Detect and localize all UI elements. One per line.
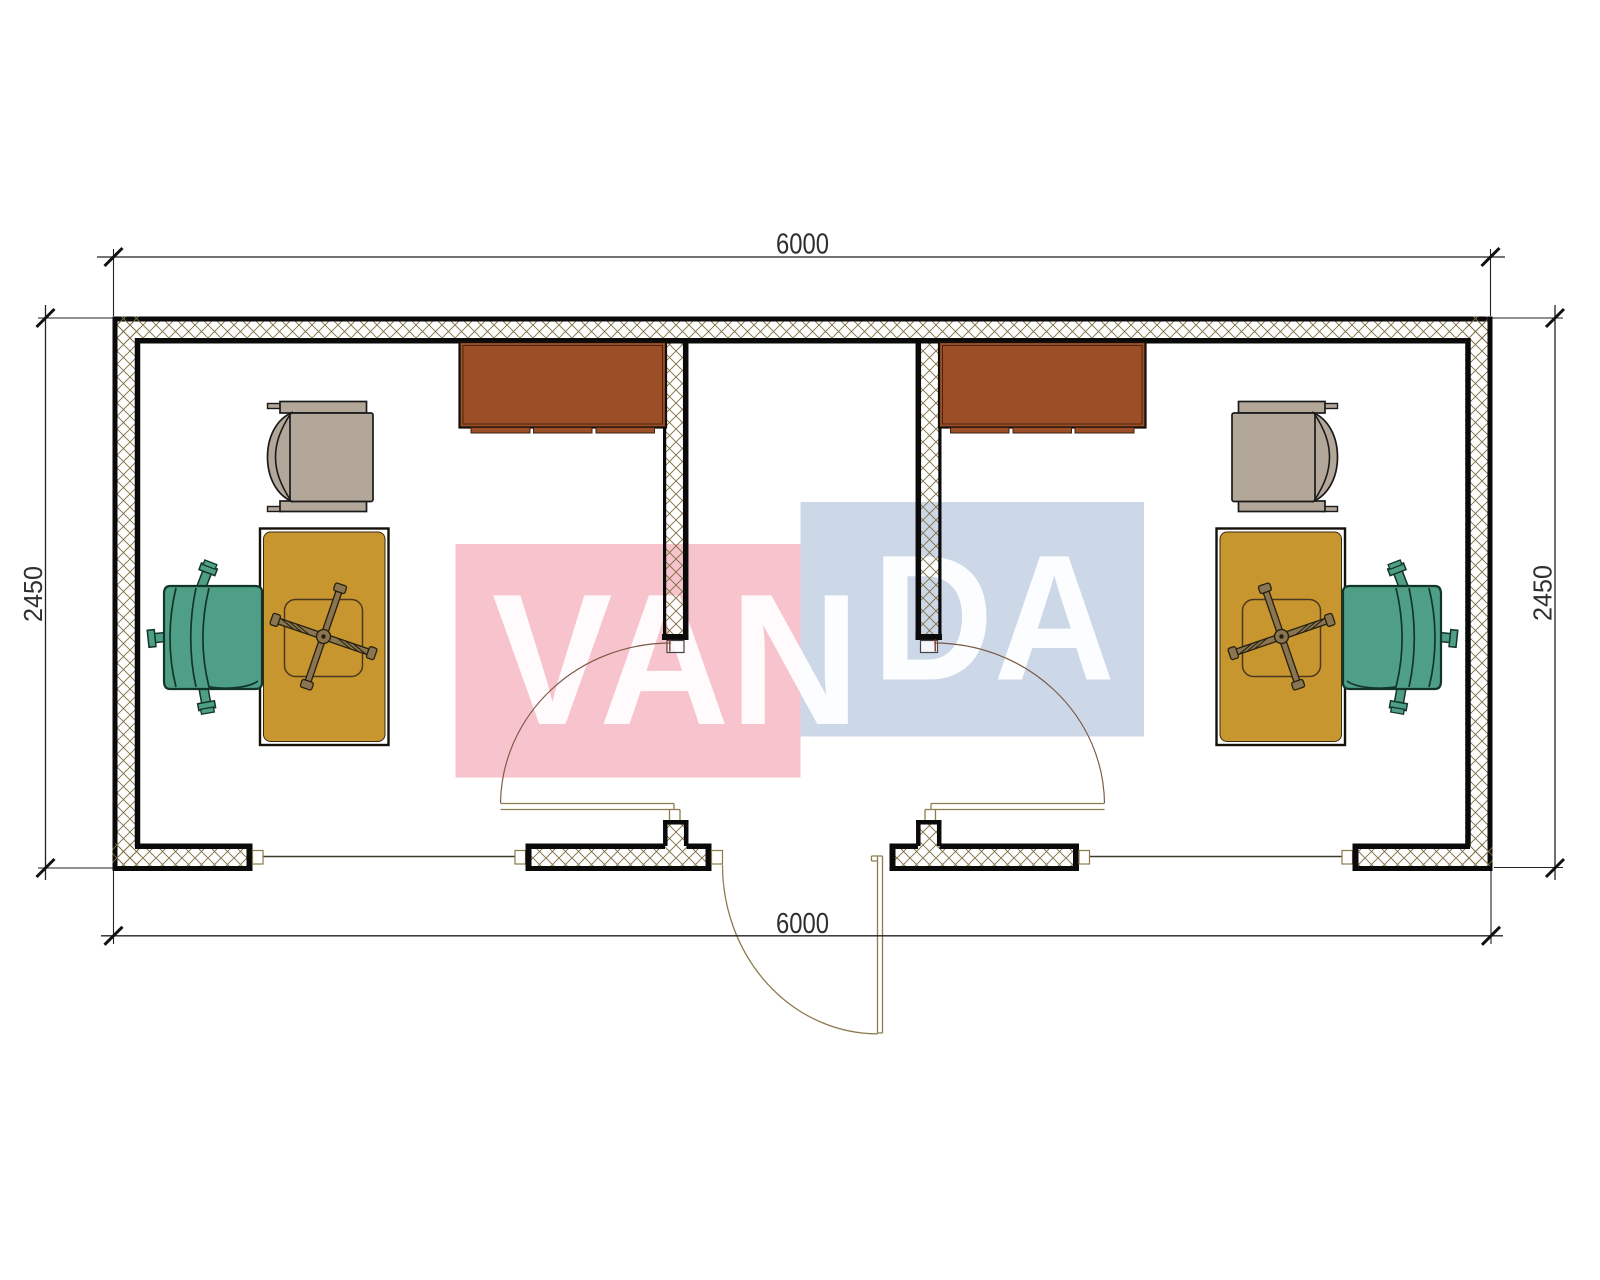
svg-text:6000: 6000: [776, 908, 829, 940]
svg-text:DA: DA: [872, 518, 1115, 718]
svg-text:6000: 6000: [776, 229, 829, 261]
svg-text:2450: 2450: [1530, 565, 1558, 621]
svg-text:2450: 2450: [20, 566, 48, 622]
